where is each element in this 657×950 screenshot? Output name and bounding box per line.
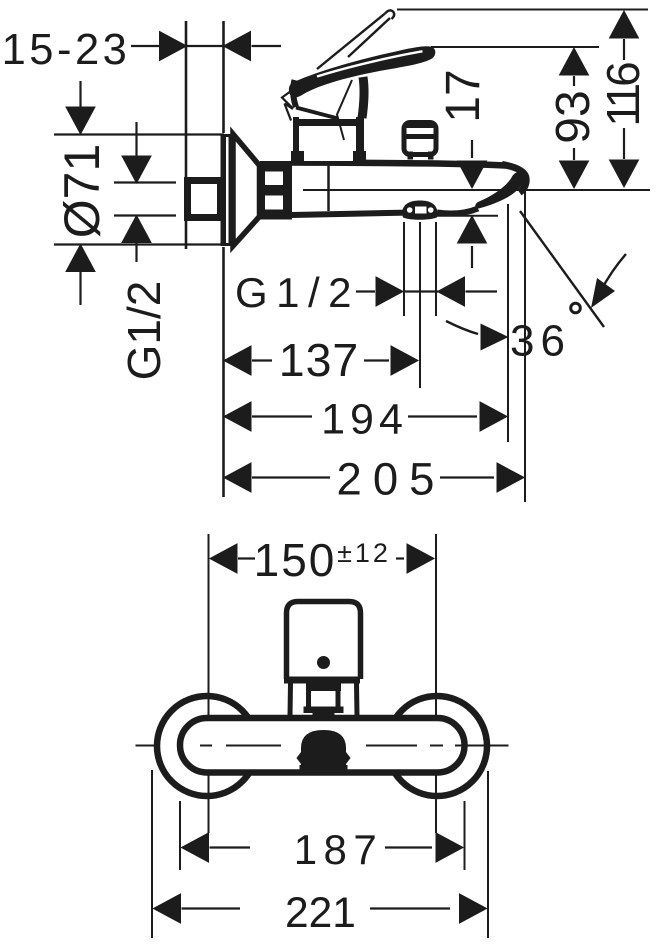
svg-text:221: 221 xyxy=(285,890,356,937)
svg-text:187: 187 xyxy=(294,826,384,873)
svg-text:205: 205 xyxy=(337,454,446,505)
svg-text:116: 116 xyxy=(597,63,649,127)
svg-text:±12: ±12 xyxy=(337,538,391,568)
svg-text:17: 17 xyxy=(437,69,490,122)
svg-text:137: 137 xyxy=(279,334,360,386)
svg-text:36: 36 xyxy=(510,317,571,366)
svg-text:Ø71: Ø71 xyxy=(54,144,110,239)
svg-text:93: 93 xyxy=(547,90,600,143)
svg-text:G1/2: G1/2 xyxy=(235,269,360,316)
svg-text:G1/2: G1/2 xyxy=(118,281,170,381)
svg-text:150: 150 xyxy=(254,534,337,586)
svg-text:15-23: 15-23 xyxy=(2,26,131,74)
svg-text:194: 194 xyxy=(321,396,408,444)
